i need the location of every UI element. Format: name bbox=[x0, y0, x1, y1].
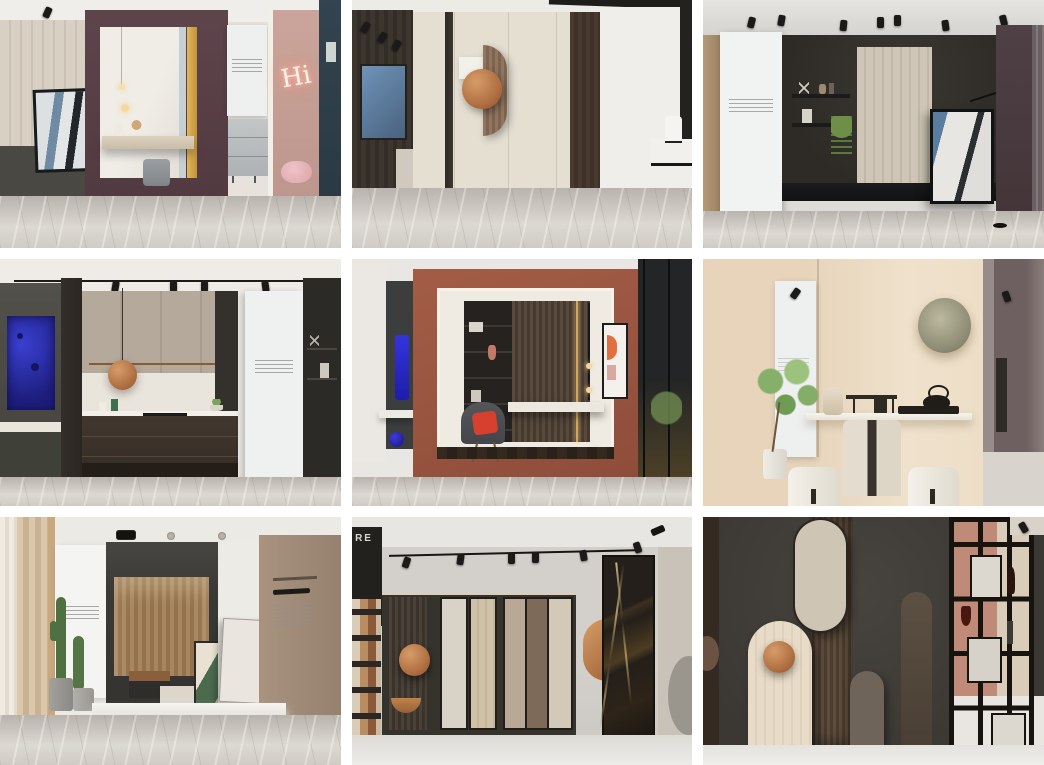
corridor-fixture bbox=[996, 358, 1006, 432]
tea-stand-leg bbox=[853, 399, 855, 414]
wall-seam bbox=[508, 12, 509, 188]
plant-pot-gray bbox=[49, 678, 73, 710]
taupe-arch-panel bbox=[850, 671, 884, 745]
bench-base bbox=[0, 432, 61, 477]
dark-gourd-vase bbox=[1007, 567, 1016, 594]
wall-decor-copper-disc bbox=[462, 69, 501, 109]
x-decor-object bbox=[310, 335, 319, 346]
partition-frame bbox=[643, 259, 645, 477]
drawer-line bbox=[82, 436, 239, 437]
grid-marble-cell bbox=[993, 715, 1024, 745]
cabinet-drawer-line bbox=[228, 156, 269, 157]
shelf-books bbox=[802, 109, 812, 123]
sign-text-lines bbox=[232, 59, 263, 74]
platform-vignette bbox=[651, 139, 692, 164]
track-light bbox=[532, 552, 539, 563]
light-floor bbox=[352, 735, 693, 765]
sign-text-lines bbox=[61, 606, 98, 621]
pendant-cable bbox=[121, 27, 122, 86]
dark-inlay-strip bbox=[445, 12, 452, 188]
accent-wall-teal bbox=[319, 0, 341, 208]
dark-beam bbox=[680, 0, 692, 154]
wood-slat-panel bbox=[857, 47, 932, 188]
cream-arch-panel bbox=[748, 621, 813, 745]
art-pink-shape bbox=[607, 365, 616, 380]
gallery-image-geometric-wall-art[interactable] bbox=[352, 0, 693, 248]
floor-tray bbox=[993, 223, 1007, 228]
greenery-reflection bbox=[651, 370, 682, 439]
sample-board bbox=[442, 599, 466, 728]
side-wood-edge bbox=[703, 35, 720, 213]
recessed-light bbox=[218, 532, 226, 540]
counter-jar bbox=[99, 402, 106, 411]
pink-pouf bbox=[281, 161, 312, 183]
grid-marble-cell bbox=[972, 557, 999, 597]
stool-slot bbox=[811, 489, 816, 504]
shelf-line bbox=[307, 348, 338, 350]
gallery-image-kitchen-display[interactable] bbox=[0, 259, 341, 507]
track-rail bbox=[389, 549, 641, 557]
dark-bottle bbox=[1007, 621, 1014, 643]
shelf-books bbox=[320, 363, 329, 378]
beige-curtain bbox=[17, 517, 48, 745]
gallery-image-study-niche-display[interactable] bbox=[352, 259, 693, 507]
drawer-line bbox=[82, 456, 239, 457]
gallery-image-tile-sample-wall[interactable]: RE bbox=[352, 517, 693, 765]
partition-frame bbox=[668, 259, 670, 477]
framed-art bbox=[602, 323, 628, 399]
grid-marble-cell bbox=[969, 639, 1000, 681]
plant-pot bbox=[763, 449, 787, 479]
cactus bbox=[73, 636, 84, 690]
pole-lamp-bulb bbox=[586, 363, 592, 369]
glass-door-sliver bbox=[1032, 25, 1044, 213]
track-light bbox=[894, 15, 901, 26]
marble-floor bbox=[352, 477, 693, 507]
white-marble-floor bbox=[703, 745, 1044, 765]
base-cabinets bbox=[82, 416, 239, 477]
niche-wood-floor bbox=[437, 447, 614, 459]
salmon-vase bbox=[488, 345, 497, 360]
copper-disc bbox=[399, 644, 430, 676]
gallery-image-tea-room-display[interactable] bbox=[703, 259, 1044, 507]
wall-seam bbox=[556, 12, 557, 188]
marble-floor bbox=[0, 196, 341, 248]
track-light bbox=[457, 554, 465, 566]
shelf-books bbox=[469, 322, 483, 332]
dried-flowers bbox=[128, 116, 145, 136]
recessed-light bbox=[167, 532, 175, 540]
stool-slot bbox=[930, 489, 935, 504]
gallery-page: Hi bbox=[0, 0, 1044, 765]
marble-floor bbox=[703, 211, 1044, 248]
sample-board bbox=[527, 599, 547, 728]
dark-red-vase bbox=[961, 606, 971, 626]
cactus-arm bbox=[50, 621, 57, 641]
glass-trim bbox=[179, 27, 186, 178]
bonsai-foliage bbox=[748, 353, 823, 447]
tea-stand-post bbox=[874, 399, 888, 415]
gallery-image-platform-display[interactable] bbox=[0, 517, 341, 765]
track-light bbox=[877, 17, 884, 28]
brass-light-strip bbox=[576, 301, 578, 442]
sign-text-lines bbox=[729, 99, 773, 114]
track-light bbox=[633, 541, 643, 554]
plum-end-wall bbox=[996, 25, 1032, 213]
tea-stand-leg bbox=[892, 399, 894, 414]
dark-brown-panel bbox=[570, 12, 601, 188]
track-light bbox=[839, 19, 847, 31]
display-platform bbox=[92, 703, 286, 715]
corridor-floor-glimpse bbox=[396, 149, 413, 191]
cobalt-panel bbox=[395, 335, 409, 399]
plant-bowl bbox=[210, 405, 224, 411]
image-grid: Hi bbox=[0, 0, 1044, 765]
dark-column bbox=[61, 278, 81, 481]
glass-partition bbox=[638, 259, 693, 477]
marble-side-wall bbox=[352, 259, 386, 462]
marble-floor bbox=[0, 477, 341, 507]
stool bbox=[143, 159, 170, 186]
art-sphere bbox=[17, 333, 23, 339]
marble-capsule-panel bbox=[795, 520, 846, 631]
sample-board bbox=[471, 599, 495, 728]
bench-top bbox=[129, 671, 170, 681]
ceiling-spot-fixture bbox=[116, 530, 136, 540]
cobalt-art-panel bbox=[7, 316, 55, 410]
corridor-blue-art bbox=[360, 64, 407, 140]
marble-table-base bbox=[843, 420, 901, 497]
dark-shelf-wall bbox=[303, 278, 340, 486]
art-sphere bbox=[31, 363, 39, 371]
gallery-image-arch-panel-display[interactable] bbox=[703, 517, 1044, 765]
sign-text-lines bbox=[255, 360, 292, 375]
vase bbox=[114, 124, 123, 136]
marble-bench bbox=[0, 422, 61, 432]
gold-accent-strip bbox=[187, 27, 197, 178]
track-light bbox=[508, 553, 515, 564]
console-shelf bbox=[102, 136, 194, 148]
red-cushion bbox=[471, 411, 498, 436]
copper-trim-line bbox=[89, 363, 232, 365]
leaning-artwork bbox=[33, 88, 93, 173]
track-light bbox=[941, 19, 949, 31]
cabinet-drawer-line bbox=[228, 137, 269, 138]
shelf-decor bbox=[471, 390, 481, 402]
copper-pendant-ball bbox=[108, 360, 137, 390]
cactus bbox=[56, 597, 66, 686]
shelf-line bbox=[307, 378, 338, 380]
track-light bbox=[401, 556, 411, 569]
corridor-floor bbox=[983, 452, 1044, 506]
marble-desk bbox=[508, 402, 603, 412]
sample-board bbox=[505, 599, 527, 728]
cabinet bbox=[228, 119, 269, 176]
basin bbox=[665, 116, 682, 141]
marble-floor bbox=[352, 188, 693, 247]
green-canister bbox=[111, 399, 118, 411]
dark-wood-edge bbox=[703, 517, 718, 745]
pendant-cable bbox=[122, 288, 123, 362]
plant-pot-gray bbox=[73, 688, 93, 710]
cabinet-legs bbox=[232, 176, 266, 183]
leaning-artwork bbox=[930, 109, 994, 204]
marble-floor bbox=[0, 715, 341, 765]
hanging-plant bbox=[831, 116, 851, 153]
niche-marble-wall bbox=[100, 27, 178, 178]
sign-panel bbox=[245, 291, 303, 489]
x-decor-object bbox=[799, 82, 809, 94]
brand-sign-text: RE bbox=[355, 533, 373, 544]
sign-panel bbox=[720, 32, 781, 213]
wall-seam bbox=[454, 12, 455, 188]
pole-lamp bbox=[588, 303, 590, 400]
gallery-image-shelf-display-wall[interactable] bbox=[703, 0, 1044, 248]
shelf-vase bbox=[819, 84, 826, 94]
gallery-image-vanity-niche-display[interactable]: Hi bbox=[0, 0, 341, 248]
sample-swatch-shelf bbox=[352, 599, 381, 745]
shelf-bottle bbox=[829, 83, 834, 94]
moon-art-disc bbox=[918, 298, 971, 352]
dark-arch-panel bbox=[901, 592, 932, 746]
stone-sculpture bbox=[823, 387, 843, 414]
white-bench bbox=[379, 410, 413, 419]
sample-board bbox=[549, 599, 571, 728]
floating-shelf bbox=[792, 94, 850, 98]
wall-niche-light bbox=[326, 42, 336, 62]
wall-text-lines bbox=[272, 603, 314, 627]
track-light bbox=[651, 525, 666, 537]
pendant-bulb bbox=[121, 104, 129, 112]
neon-hi-sign: Hi bbox=[279, 62, 313, 92]
